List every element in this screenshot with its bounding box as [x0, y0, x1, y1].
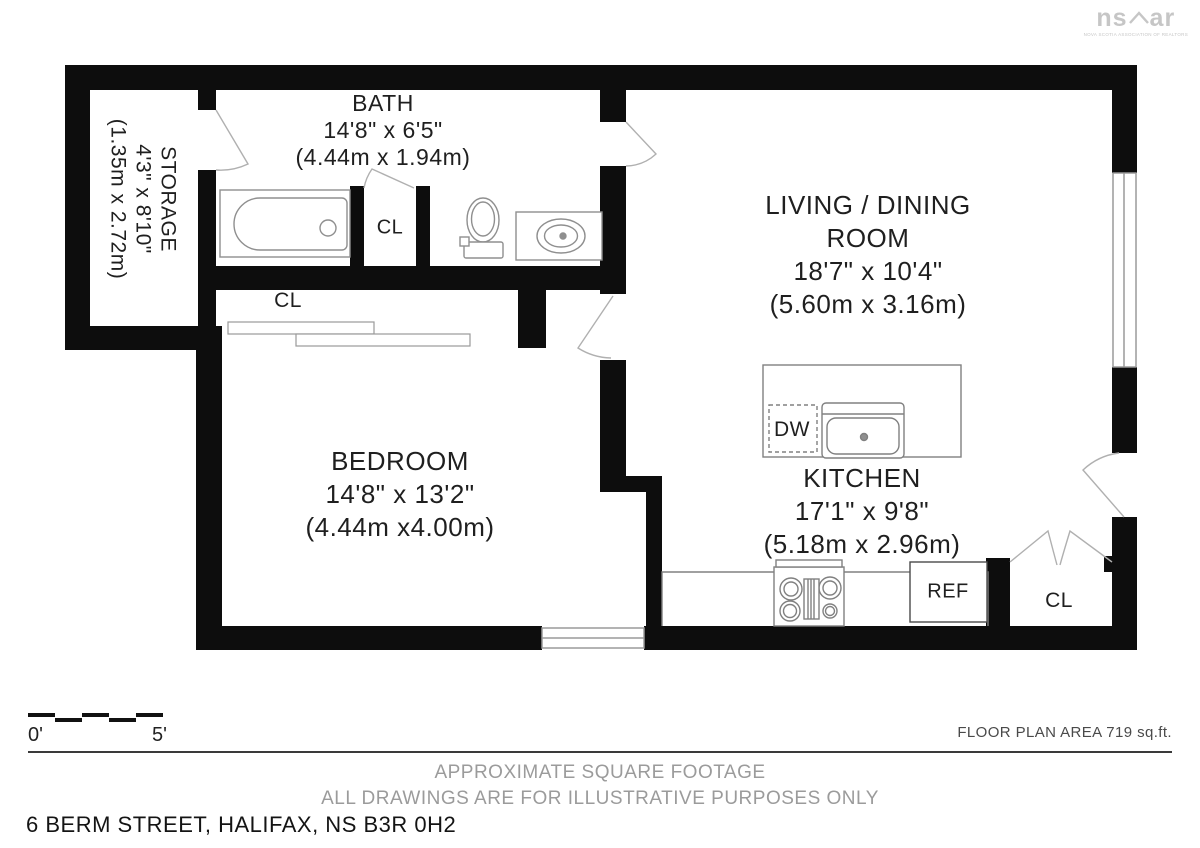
floor-plan-area-note: FLOOR PLAN AREA 719 sq.ft. — [957, 724, 1172, 741]
bedroom-closet-sliding-doors — [228, 322, 470, 346]
kitchen-metric: (5.18m x 2.96m) — [712, 528, 1012, 561]
bedroom-metric: (4.44m x4.00m) — [250, 511, 550, 544]
wall-storage-right-lower — [198, 170, 216, 326]
storage-room-metric: (1.35m x 2.72m) — [106, 84, 131, 314]
bedroom-label: BEDROOM 14'8" x 13'2" (4.44m x4.00m) — [250, 445, 550, 544]
stove-burner-3-inner — [823, 581, 837, 595]
bath-closet-door — [364, 169, 414, 188]
footer-divider-line — [28, 751, 1172, 753]
wall-bottom-left — [196, 626, 542, 650]
stove-burner-1-inner — [784, 582, 798, 596]
wall-left-storage — [65, 65, 90, 350]
wall-storage-right-upper — [198, 90, 216, 110]
storage-room-name: STORAGE — [156, 84, 181, 314]
scale-end-label: 5' — [152, 724, 167, 747]
bath-closet-label: CL — [377, 217, 404, 240]
bedroom-imperial: 14'8" x 13'2" — [250, 478, 550, 511]
bedroom-name: BEDROOM — [250, 445, 550, 478]
bedroom-closet-label: CL — [274, 289, 302, 313]
disclaimer-line1: APPROXIMATE SQUARE FOOTAGE — [0, 760, 1200, 786]
disclaimer-line2: ALL DRAWINGS ARE FOR ILLUSTRATIVE PURPOS… — [0, 786, 1200, 812]
wall-top — [65, 65, 1137, 90]
wall-right-low — [1112, 517, 1137, 650]
nsar-logo-text-left: ns — [1096, 6, 1127, 31]
wall-bedroom-divider-low — [600, 360, 626, 478]
bathroom-fixtures — [220, 190, 602, 260]
wall-entry-closet-right-stub — [1104, 556, 1114, 572]
storage-room-label: STORAGE 4'3" x 8'10" (1.35m x 2.72m) — [106, 84, 181, 314]
living-room-name-line1: LIVING / DINING — [718, 189, 1018, 222]
bedroom-door — [578, 296, 613, 358]
nsar-logo-subtext: NOVA SCOTIA ASSOCIATION OF REALTORS — [1084, 33, 1188, 38]
scale-bar — [28, 713, 163, 722]
scale-start-label: 0' — [28, 724, 43, 747]
bath-door — [626, 122, 656, 166]
wall-bath-closet-right — [416, 186, 430, 268]
scale-bar-segment — [82, 713, 109, 722]
scale-bar-segment — [55, 713, 82, 722]
wall-bottom-right — [644, 626, 1137, 650]
dishwasher-label: DW — [774, 418, 810, 442]
kitchen-name: KITCHEN — [712, 462, 1012, 495]
wall-right-mid — [1112, 367, 1137, 453]
property-address: 6 BERM STREET, HALIFAX, NS B3R 0H2 — [26, 812, 456, 838]
kitchen-label: KITCHEN 17'1" x 9'8" (5.18m x 2.96m) — [712, 462, 1012, 561]
wall-bedroom-left — [196, 326, 222, 650]
island-sink-faucet — [861, 434, 868, 441]
bath-room-imperial: 14'8" x 6'5" — [233, 117, 533, 144]
disclaimer: APPROXIMATE SQUARE FOOTAGE ALL DRAWINGS … — [0, 760, 1200, 812]
living-room-imperial: 18'7" x 10'4" — [718, 255, 1018, 288]
nsar-logo: ns ar NOVA SCOTIA ASSOCIATION OF REALTOR… — [1084, 6, 1188, 38]
stove-burner-4-inner — [826, 607, 835, 616]
sliding-door-panel-right — [296, 334, 470, 346]
bath-room-label: BATH 14'8" x 6'5" (4.44m x 1.94m) — [233, 90, 533, 171]
vanity-faucet — [560, 233, 566, 239]
wall-bath-closet-left — [350, 186, 364, 268]
scale-bar-segment — [109, 713, 136, 722]
living-room-name-line2: ROOM — [718, 222, 1018, 255]
wall-bedroom-closet-right — [518, 290, 546, 348]
scale-bar-segment — [136, 713, 163, 722]
scale-bar-segment — [28, 713, 55, 722]
stove-burner-2-inner — [784, 605, 797, 618]
bath-room-metric: (4.44m x 1.94m) — [233, 144, 533, 171]
living-room-metric: (5.60m x 3.16m) — [718, 288, 1018, 321]
wall-kitchen-left-low — [646, 478, 662, 628]
entry-door — [1083, 453, 1124, 517]
living-dining-room-label: LIVING / DINING ROOM 18'7" x 10'4" (5.60… — [718, 189, 1018, 321]
toilet-handle — [460, 237, 469, 246]
storage-room-imperial: 4'3" x 8'10" — [131, 84, 156, 314]
entry-closet-label: CL — [1045, 589, 1073, 613]
toilet-bowl-inner — [472, 202, 495, 236]
nsar-logo-wordmark: ns ar — [1084, 6, 1188, 31]
kitchen-imperial: 17'1" x 9'8" — [712, 495, 1012, 528]
wall-bath-divider-mid — [600, 166, 626, 294]
wall-entry-closet-left — [986, 558, 1010, 628]
nsar-logo-text-right: ar — [1150, 6, 1176, 31]
wall-bath-bottom — [198, 266, 626, 290]
bath-room-name: BATH — [233, 90, 533, 117]
toilet-tank — [464, 242, 503, 258]
bathtub-drain — [320, 220, 336, 236]
wall-bath-divider-stub — [600, 90, 626, 122]
stove-backsplash — [776, 560, 842, 567]
sliding-door-panel-left — [228, 322, 374, 334]
house-roof-icon — [1129, 9, 1149, 31]
entry-closet-door-left — [1010, 531, 1057, 565]
refrigerator-label: REF — [927, 581, 969, 604]
wall-right-top — [1112, 65, 1137, 173]
